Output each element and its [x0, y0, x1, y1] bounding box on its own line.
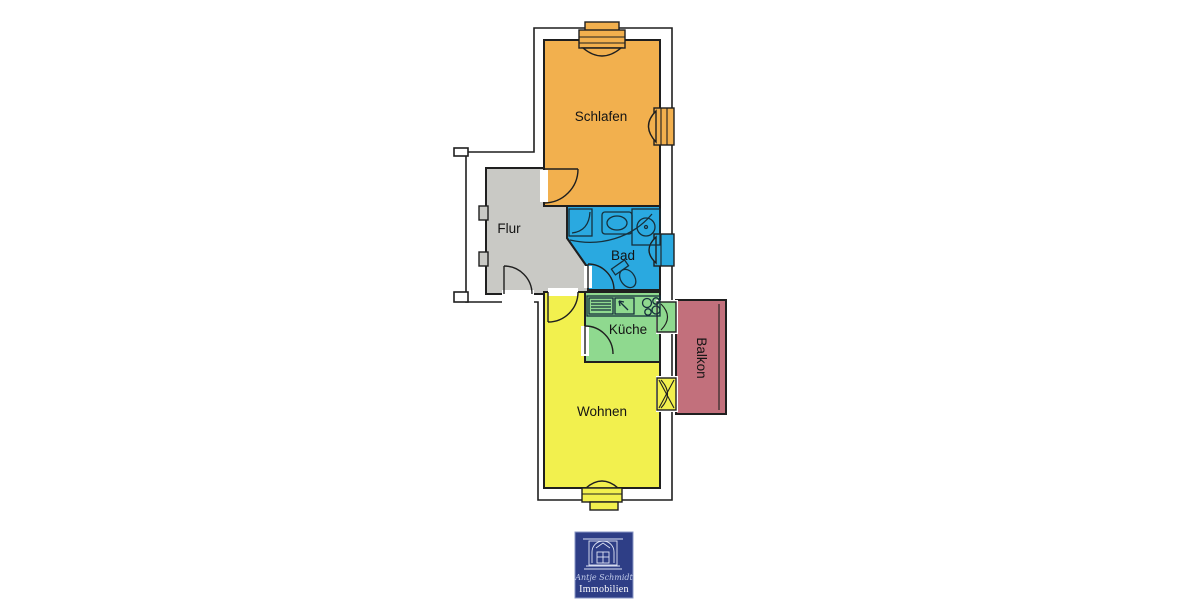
agency-logo: Antje Schmidt Immobilien: [574, 532, 633, 598]
door-gap-flur-wohnen: [548, 288, 578, 296]
label-bad: Bad: [611, 248, 635, 263]
window-schlafen-top: [579, 22, 625, 56]
label-schlafen: Schlafen: [575, 109, 628, 124]
window-frame-icon: [579, 30, 625, 48]
door-wohnen-balkon: [657, 378, 676, 410]
door-gap-entry: [502, 290, 534, 304]
floorplan-canvas: Schlafen Flur Bad Küche Wohnen Balkon An…: [0, 0, 1200, 600]
label-kueche: Küche: [609, 322, 647, 337]
floorplan-svg: Schlafen Flur Bad Küche Wohnen Balkon An…: [0, 0, 1200, 600]
wall-endcap-bottom: [454, 292, 468, 302]
label-balkon: Balkon: [694, 337, 709, 378]
wall-endcap-top: [454, 148, 468, 156]
window-sill-icon: [590, 502, 618, 510]
window-frame-icon: [582, 488, 622, 502]
window-frame-icon: [654, 108, 674, 145]
window-frame-icon: [654, 234, 674, 266]
flur-wall-notch-1: [479, 206, 488, 220]
door-gap-flur-schlafen: [540, 170, 548, 202]
flur-wall-notch-2: [479, 252, 488, 266]
logo-script-text: Antje Schmidt: [574, 573, 633, 582]
logo-brand-text: Immobilien: [579, 584, 629, 595]
label-flur: Flur: [497, 221, 521, 236]
label-wohnen: Wohnen: [577, 404, 627, 419]
